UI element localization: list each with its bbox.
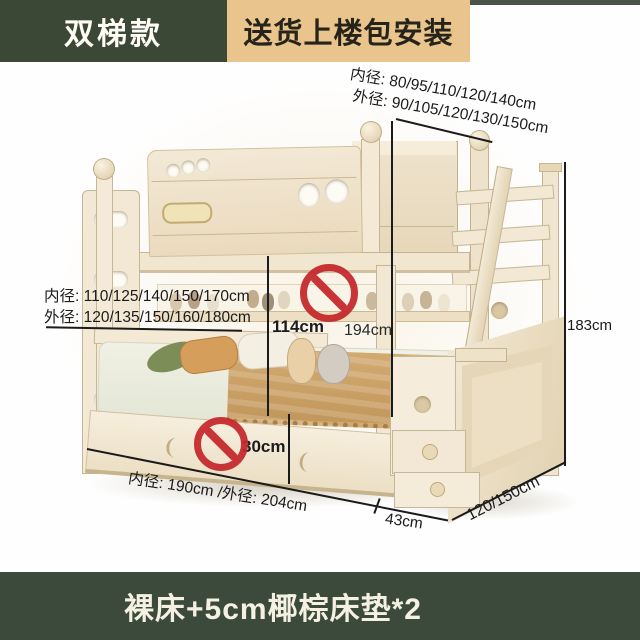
drawer-handle xyxy=(299,452,320,473)
height-183-label: 183cm xyxy=(567,315,612,336)
headboard-post-finial xyxy=(360,121,382,143)
dim-line-194 xyxy=(391,121,393,417)
panel-hole xyxy=(196,158,210,172)
drawer-handle xyxy=(166,437,187,458)
stair-drawer-hole xyxy=(414,396,431,413)
stair-drawer-knob xyxy=(422,444,438,460)
dim-line-183 xyxy=(564,162,566,466)
no-entry-slash xyxy=(203,426,238,461)
stringer-hole xyxy=(491,302,508,319)
product-note-label: 裸床+5cm椰棕床垫*2 xyxy=(124,584,422,628)
panel-hole xyxy=(166,164,180,178)
panel-hole xyxy=(181,160,195,174)
mid-outer-dim: 外径: 120/135/150/160/180cm xyxy=(44,307,251,328)
stair-post-cap xyxy=(539,163,562,172)
dim-line-30 xyxy=(288,414,290,484)
height-194-label: 194cm xyxy=(344,320,392,341)
headboard-front-post xyxy=(361,139,380,263)
mid-dimensions: 内径: 110/125/140/150/170cm 外径: 120/135/15… xyxy=(44,286,251,328)
product-image: 双梯款 送货上楼包安装 xyxy=(0,0,640,640)
stair-drawer-knob xyxy=(430,482,445,497)
panel-seam xyxy=(153,231,358,236)
panel-seam xyxy=(152,177,357,182)
no-entry-slash xyxy=(310,274,348,312)
panel-hole xyxy=(298,183,320,207)
no-entry-icon xyxy=(300,264,358,322)
giraffe-plush xyxy=(287,338,316,384)
panel-hole xyxy=(325,179,349,203)
mid-inner-dim: 内径: 110/125/140/150/170cm xyxy=(44,286,251,307)
dim-line-114 xyxy=(267,256,269,416)
hippo-plush xyxy=(317,344,350,384)
product-note-banner: 裸床+5cm椰棕床垫*2 xyxy=(0,572,640,640)
no-entry-icon xyxy=(194,417,248,471)
height-30-label: 30cm xyxy=(242,436,285,457)
stair-step-tread xyxy=(455,348,507,362)
brand-plate xyxy=(162,202,212,224)
front-left-finial xyxy=(93,158,115,180)
upper-guard-panel xyxy=(147,146,363,257)
